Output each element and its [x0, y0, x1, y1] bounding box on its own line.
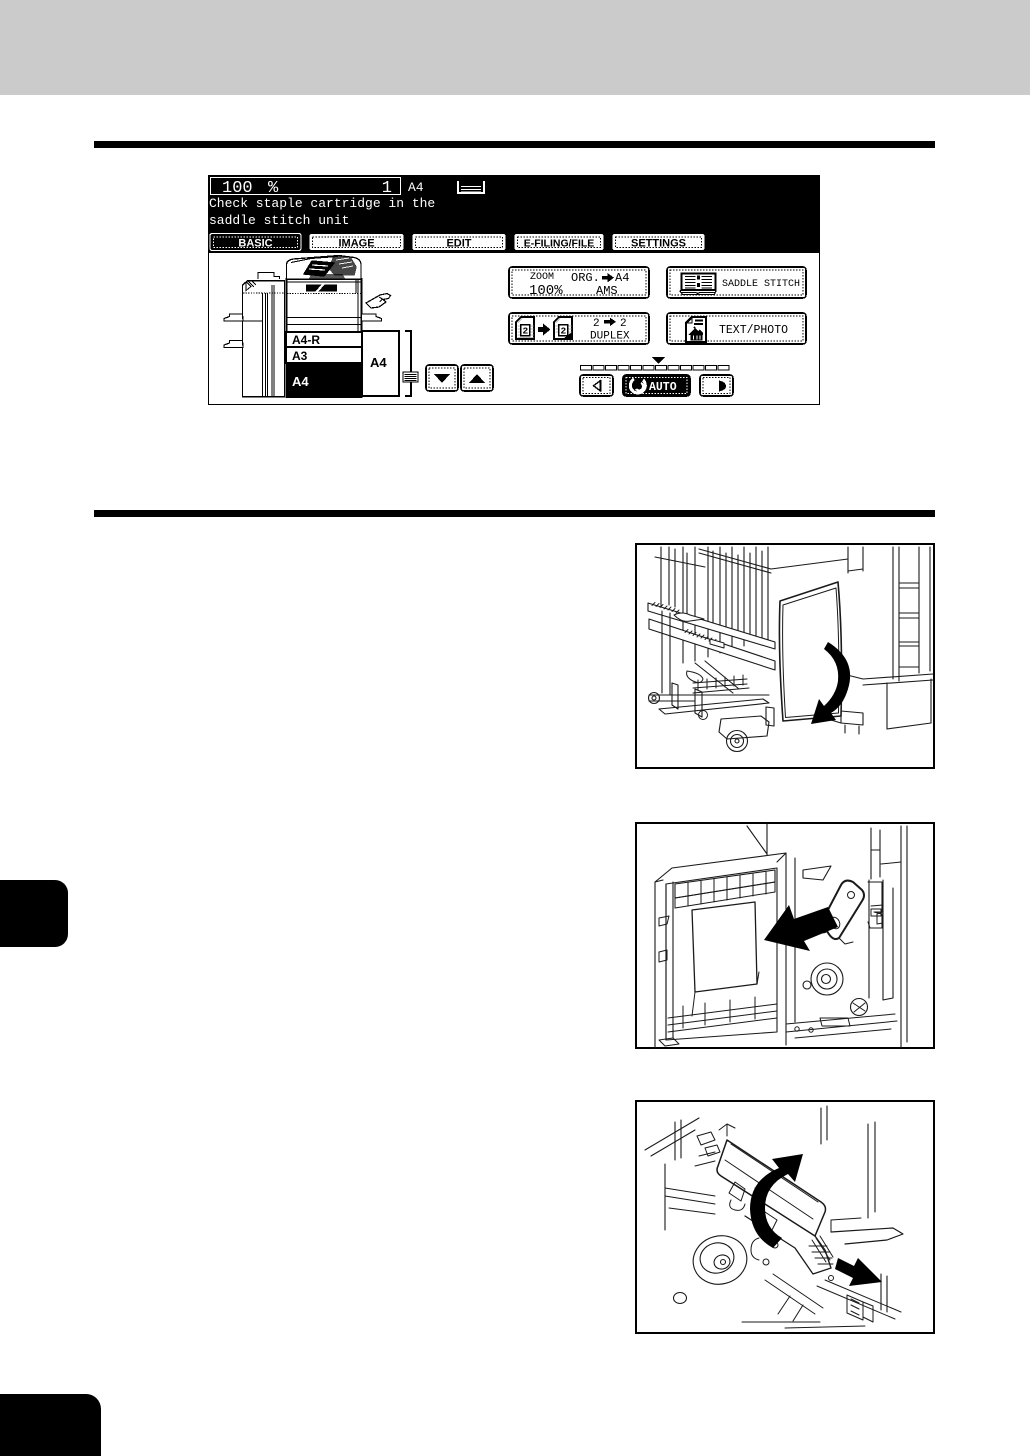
svg-text:A4: A4	[615, 271, 629, 285]
svg-text:A3: A3	[292, 349, 308, 363]
svg-text:A4: A4	[408, 180, 424, 195]
svg-text:2: 2	[620, 318, 627, 330]
svg-text:ORG.: ORG.	[571, 271, 600, 285]
svg-text:AMS: AMS	[596, 284, 618, 298]
svg-text:TEXT/PHOTO: TEXT/PHOTO	[719, 324, 788, 337]
svg-text:saddle stitch unit: saddle stitch unit	[209, 213, 349, 228]
svg-text:100%: 100%	[529, 283, 563, 299]
svg-text:2: 2	[523, 326, 529, 337]
svg-text:ZOOM: ZOOM	[530, 272, 554, 283]
svg-text:E-FILING/FILE: E-FILING/FILE	[524, 238, 595, 250]
svg-text:A4: A4	[370, 355, 387, 370]
svg-text:BASIC: BASIC	[238, 238, 272, 250]
svg-text:A4: A4	[292, 374, 309, 389]
svg-text:SETTINGS: SETTINGS	[631, 238, 686, 250]
svg-text:2: 2	[561, 326, 567, 337]
svg-text:2: 2	[593, 318, 600, 330]
svg-text:AUTO: AUTO	[649, 381, 677, 394]
svg-text:A4-R: A4-R	[292, 333, 320, 347]
svg-text:Check staple cartridge in the: Check staple cartridge in the	[209, 196, 435, 211]
svg-text:IMAGE: IMAGE	[338, 238, 374, 250]
svg-text:SADDLE STITCH: SADDLE STITCH	[722, 279, 800, 290]
svg-text:EDIT: EDIT	[446, 238, 471, 250]
svg-text:DUPLEX: DUPLEX	[590, 331, 630, 343]
